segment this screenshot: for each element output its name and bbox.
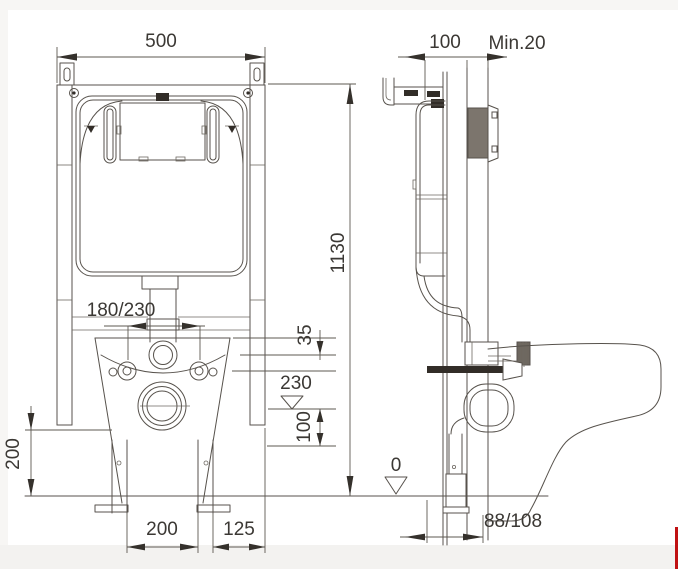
- dim-label-outlet-level: 230: [280, 373, 312, 394]
- dim-label-frame-width: 500: [145, 31, 177, 52]
- dim-leg-to-edge: 125: [213, 428, 265, 553]
- bolt-hole-left: [118, 362, 136, 380]
- dim-label-frame-depth: 100: [429, 32, 461, 53]
- slot-left: [104, 106, 116, 163]
- dim-frame-width: 500: [57, 31, 265, 83]
- dim-label-floor-level: 0: [391, 455, 402, 476]
- dim-label-leg-spacing: 200: [146, 519, 178, 540]
- dim-label-lower-height: 200: [3, 438, 24, 470]
- level-marker-outlet: 230: [232, 371, 336, 409]
- level-marker-floor: 0: [385, 455, 407, 494]
- dim-label-leg-to-edge: 125: [223, 519, 255, 540]
- wall-hanger-bracket: [383, 78, 444, 108]
- level-triangle-230: [281, 396, 303, 409]
- side-view: [383, 68, 661, 545]
- bolt-hole-right: [190, 362, 208, 380]
- dim-label-flush-offset: 35: [295, 324, 316, 345]
- access-window: [120, 103, 205, 160]
- diagram-canvas: 500 100 Min.20 1130 180/230: [0, 0, 678, 569]
- waste-horn: [464, 384, 514, 432]
- lower-bracket: [72, 289, 250, 503]
- frame-legs: [95, 440, 230, 513]
- dim-frame-depth: 100 Min.20: [398, 32, 546, 100]
- wall-tab-right: [250, 63, 264, 85]
- technical-drawing: 500 100 Min.20 1130 180/230: [0, 0, 678, 569]
- dim-label-outlet-wall-distance: 88/108: [484, 511, 542, 532]
- bolt-washer-cone: [503, 359, 522, 380]
- cistern-tank: [76, 93, 247, 289]
- flush-plate-side: [468, 108, 488, 158]
- cistern-profile: [413, 101, 447, 276]
- dim-label-outlet-offset: 100: [294, 411, 315, 443]
- dim-label-min-wall: Min.20: [488, 33, 545, 54]
- flush-spud: [465, 342, 498, 365]
- wall-tab-left: [60, 63, 74, 85]
- level-triangle-0: [385, 477, 407, 494]
- dim-outlet-offset: 100: [267, 409, 336, 446]
- dim-lower-height: 200: [3, 406, 112, 496]
- slot-right: [207, 106, 219, 163]
- mounting-bolt-rod: [427, 366, 503, 373]
- dim-label-frame-height: 1130: [328, 233, 349, 274]
- dim-leg-spacing: 200: [127, 513, 198, 553]
- dim-outlet-wall-distance: 88/108: [400, 500, 542, 543]
- window-clip: [156, 93, 169, 101]
- dim-label-bolt-spacing: 180/230: [87, 300, 156, 321]
- flush-bend-notch: [142, 276, 178, 289]
